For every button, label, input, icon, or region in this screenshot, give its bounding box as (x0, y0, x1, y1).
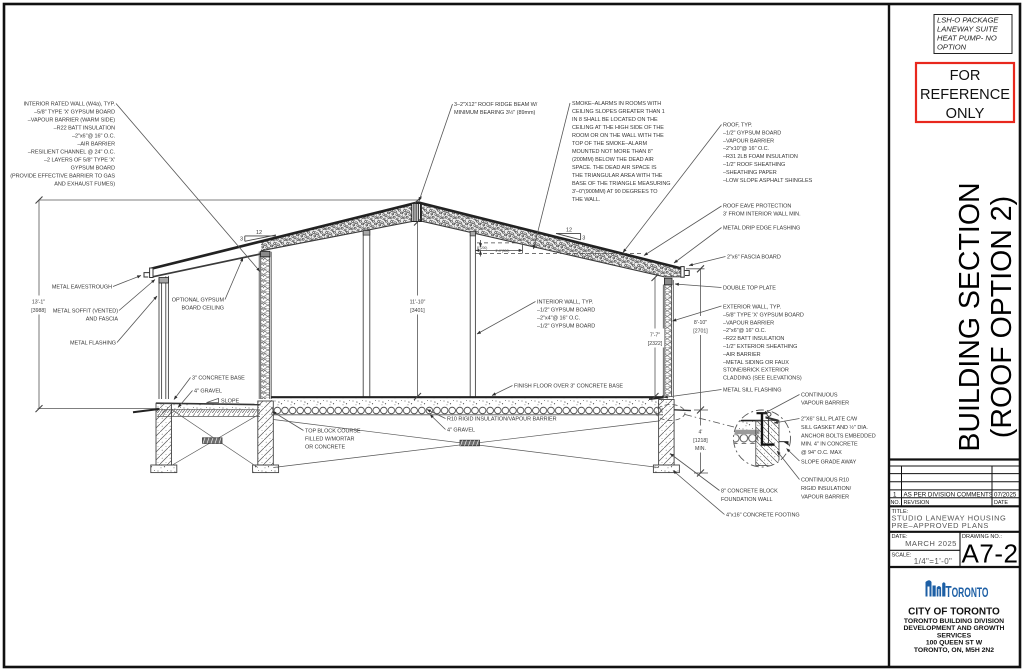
svg-text:[3988]: [3988] (31, 308, 46, 314)
svg-text:METAL SILL FLASHING: METAL SILL FLASHING (723, 388, 781, 394)
svg-text:3: 3 (582, 236, 585, 242)
svg-text:3: 3 (240, 237, 243, 243)
svg-text:METAL DRIP EDGE FLASHING: METAL DRIP EDGE FLASHING (723, 226, 800, 232)
svg-text:–1/2" GYPSUM BOARD: –1/2" GYPSUM BOARD (537, 324, 595, 330)
svg-text:–R22 BATT INSULATION: –R22 BATT INSULATION (54, 126, 115, 132)
svg-text:SLOPE GRADE AWAY: SLOPE GRADE AWAY (801, 460, 857, 466)
svg-text:METAL FLASHING: METAL FLASHING (70, 341, 116, 347)
svg-text:–AIR BARRIER: –AIR BARRIER (77, 142, 115, 148)
svg-text:LSH-O PACKAGE: LSH-O PACKAGE (937, 16, 999, 25)
svg-text:ROOM OR ON THE WALL WITH THE: ROOM OR ON THE WALL WITH THE (572, 133, 664, 139)
svg-text:[2701]: [2701] (693, 328, 708, 334)
svg-text:TORONTO, ON, M5H 2N2: TORONTO, ON, M5H 2N2 (914, 647, 994, 654)
svg-text:SMOKE–ALARMS IN ROOMS WITH: SMOKE–ALARMS IN ROOMS WITH (572, 101, 661, 107)
svg-text:SILL GASKET AND ½" DIA.: SILL GASKET AND ½" DIA. (801, 424, 868, 431)
svg-text:11'-10": 11'-10" (410, 300, 426, 306)
svg-text:SPACE. THE DEAD AIR SPACE IS: SPACE. THE DEAD AIR SPACE IS (572, 165, 657, 171)
svg-text:–1/2" ROOF SHEATHING: –1/2" ROOF SHEATHING (723, 162, 785, 168)
svg-text:FOR: FOR (950, 68, 981, 84)
svg-text:REFERENCE: REFERENCE (920, 87, 1010, 103)
svg-text:@ 94" O.C. MAX: @ 94" O.C. MAX (801, 450, 842, 456)
svg-text:12: 12 (256, 230, 262, 236)
svg-text:AND EXHAUST FUMES): AND EXHAUST FUMES) (54, 182, 115, 188)
svg-text:–5/8" TYPE 'X' GYPSUM BOARD: –5/8" TYPE 'X' GYPSUM BOARD (723, 312, 804, 318)
svg-text:100 QUEEN ST W: 100 QUEEN ST W (926, 640, 983, 647)
svg-text:METAL SOFFIT (VENTED): METAL SOFFIT (VENTED) (53, 309, 118, 315)
svg-text:DEVELOPMENT AND GROWTH: DEVELOPMENT AND GROWTH (904, 625, 1005, 632)
svg-text:(PROVIDE EFFECTIVE BARRIER TO: (PROVIDE EFFECTIVE BARRIER TO GAS (10, 174, 115, 180)
svg-text:PRE–APPROVED PLANS: PRE–APPROVED PLANS (892, 521, 989, 530)
svg-text:(200MM) BELOW THE DEAD AIR: (200MM) BELOW THE DEAD AIR (572, 157, 654, 163)
svg-text:TORONTO BUILDING DIVISION: TORONTO BUILDING DIVISION (904, 618, 1004, 625)
svg-text:3–2"X12" ROOF RIDGE BEAM W/: 3–2"X12" ROOF RIDGE BEAM W/ (454, 102, 538, 108)
svg-text:3'-0"(900): 3'-0"(900) (496, 249, 510, 253)
svg-text:CLADDING (SEE ELEVATIONS): CLADDING (SEE ELEVATIONS) (723, 376, 802, 382)
svg-text:–R31 2LB FOAM INSULATION: –R31 2LB FOAM INSULATION (723, 154, 798, 160)
svg-text:OPTION: OPTION (937, 43, 967, 52)
svg-text:–METAL SIDING OR FAUX: –METAL SIDING OR FAUX (723, 360, 789, 366)
svg-text:BUILDING SECTION: BUILDING SECTION (954, 182, 986, 451)
svg-text:INTERIOR WALL, TYP.: INTERIOR WALL, TYP. (537, 300, 594, 306)
svg-text:GYPSUM BOARD: GYPSUM BOARD (71, 166, 115, 172)
svg-text:–2"x10"@ 16" O.C.: –2"x10"@ 16" O.C. (723, 146, 770, 152)
svg-text:BOARD CEILING: BOARD CEILING (182, 306, 224, 312)
svg-text:CEILING SLOPES GREATER THAN 1: CEILING SLOPES GREATER THAN 1 (572, 109, 665, 115)
svg-text:–2"x6"@ 16" O.C.: –2"x6"@ 16" O.C. (72, 134, 116, 140)
svg-text:FINISH FLOOR OVER 3" CONCRETE: FINISH FLOOR OVER 3" CONCRETE BASE (514, 384, 623, 390)
svg-text:REVISION: REVISION (904, 500, 930, 506)
svg-text:THE WALL.: THE WALL. (572, 197, 601, 203)
svg-text:ROOF, TYP.: ROOF, TYP. (723, 123, 753, 129)
svg-text:TOP BLOCK COURSE: TOP BLOCK COURSE (305, 429, 361, 435)
svg-text:–2"x6"@ 16" O.C.: –2"x6"@ 16" O.C. (723, 328, 767, 334)
svg-text:(ROOF OPTION 2): (ROOF OPTION 2) (986, 196, 1018, 438)
svg-text:[3401]: [3401] (410, 308, 425, 314)
svg-text:VAPOUR BARRIER: VAPOUR BARRIER (801, 494, 849, 500)
svg-text:STONE/BRICK EXTERIOR: STONE/BRICK EXTERIOR (723, 368, 789, 374)
svg-text:SCALE:: SCALE: (892, 553, 912, 559)
svg-text:VAPOUR BARRIER: VAPOUR BARRIER (801, 401, 849, 407)
svg-text:NO.: NO. (891, 500, 901, 506)
svg-text:–1/2" GYPSUM BOARD: –1/2" GYPSUM BOARD (723, 130, 781, 136)
svg-text:ROOF EAVE PROTECTION: ROOF EAVE PROTECTION (723, 204, 791, 210)
svg-text:CEILING AT THE HIGH SIDE OF TH: CEILING AT THE HIGH SIDE OF THE (572, 125, 664, 131)
svg-text:MOUNTED NOT MORE THAN 8": MOUNTED NOT MORE THAN 8" (572, 149, 653, 155)
svg-text:–VAPOUR BARRIER: –VAPOUR BARRIER (723, 320, 774, 326)
svg-text:13'-1": 13'-1" (32, 300, 45, 306)
svg-text:FILLED W/MORTAR: FILLED W/MORTAR (305, 437, 355, 443)
svg-text:CITY OF TORONTO: CITY OF TORONTO (908, 607, 1000, 618)
svg-text:A7-2: A7-2 (962, 539, 1019, 569)
svg-text:8"(200): 8"(200) (477, 246, 487, 250)
svg-text:8'-10": 8'-10" (694, 320, 707, 326)
svg-text:–1/2" GYPSUM BOARD: –1/2" GYPSUM BOARD (537, 308, 595, 314)
svg-text:AS PER DIVISION COMMENTS: AS PER DIVISION COMMENTS (904, 491, 993, 498)
svg-text:MINIMUM BEARING 3½" (89mm): MINIMUM BEARING 3½" (89mm) (454, 109, 536, 116)
svg-text:2"x6" FASCIA BOARD: 2"x6" FASCIA BOARD (727, 255, 781, 261)
svg-text:[2322]: [2322] (648, 341, 663, 347)
svg-text:–2 LAYERS OF 5/8" TYPE 'X': –2 LAYERS OF 5/8" TYPE 'X' (44, 158, 115, 164)
svg-text:8" CONCRETE BLOCK: 8" CONCRETE BLOCK (721, 489, 778, 495)
svg-text:3' FROM INTERIOR WALL MIN.: 3' FROM INTERIOR WALL MIN. (723, 212, 801, 218)
svg-text:AND FASCIA: AND FASCIA (86, 317, 119, 323)
svg-text:–RESILIENT CHANNEL @ 24" O.C.: –RESILIENT CHANNEL @ 24" O.C. (28, 150, 116, 156)
svg-text:TORONTO: TORONTO (946, 584, 989, 601)
svg-text:THE TRIANGULAR AREA WITH THE: THE TRIANGULAR AREA WITH THE (572, 173, 663, 179)
svg-text:METAL EAVESTROUGH: METAL EAVESTROUGH (52, 285, 112, 291)
svg-text:3'–0"(900MM) AT 90 DEGREES TO: 3'–0"(900MM) AT 90 DEGREES TO (572, 189, 658, 195)
svg-text:HEAT PUMP- NO: HEAT PUMP- NO (937, 34, 997, 43)
svg-text:ANCHOR BOLTS EMBEDDED: ANCHOR BOLTS EMBEDDED (801, 433, 876, 439)
svg-text:–AIR BARRIER: –AIR BARRIER (723, 352, 761, 358)
svg-text:EXTERIOR WALL, TYP.: EXTERIOR WALL, TYP. (723, 305, 781, 311)
svg-text:CONTINUOUS: CONTINUOUS (801, 393, 838, 399)
svg-text:4"x16" CONCRETE FOOTING: 4"x16" CONCRETE FOOTING (726, 513, 800, 519)
svg-text:SERVICES: SERVICES (937, 632, 972, 639)
svg-text:4" GRAVEL: 4" GRAVEL (447, 428, 475, 434)
svg-text:–2"x4"@ 16" O.C.: –2"x4"@ 16" O.C. (537, 316, 581, 322)
svg-text:OR CONCRETE: OR CONCRETE (305, 445, 345, 451)
svg-text:MIN. 4" IN CONCRETE: MIN. 4" IN CONCRETE (801, 442, 858, 448)
svg-text:4': 4' (699, 430, 703, 436)
svg-text:–5/8" TYPE 'X' GYPSUM BOARD: –5/8" TYPE 'X' GYPSUM BOARD (34, 110, 115, 116)
svg-text:TOP OF THE SMOKE–ALARM: TOP OF THE SMOKE–ALARM (572, 141, 647, 147)
svg-text:–SHEATHING PAPER: –SHEATHING PAPER (723, 170, 777, 176)
svg-text:ONLY: ONLY (946, 106, 985, 122)
svg-text:–R22 BATT INSULATION: –R22 BATT INSULATION (723, 336, 784, 342)
svg-text:FOUNDATION WALL: FOUNDATION WALL (721, 497, 773, 503)
svg-text:CONTINUOUS R10: CONTINUOUS R10 (801, 478, 849, 484)
svg-text:3" CONCRETE BASE: 3" CONCRETE BASE (192, 376, 245, 382)
svg-text:–LOW SLOPE ASPHALT SHINGLES: –LOW SLOPE ASPHALT SHINGLES (723, 178, 813, 184)
svg-text:07/2025: 07/2025 (994, 491, 1017, 498)
svg-text:IN 8 SHALL BE LOCATED ON THE: IN 8 SHALL BE LOCATED ON THE (572, 117, 658, 123)
svg-text:RIGID INSULATION/: RIGID INSULATION/ (801, 486, 852, 492)
svg-text:R10 RIGID INSULATION/VAPOUR BA: R10 RIGID INSULATION/VAPOUR BARRIER (447, 417, 557, 423)
svg-text:2"X6" SILL PLATE C/W: 2"X6" SILL PLATE C/W (801, 417, 858, 423)
svg-text:MIN.: MIN. (695, 446, 706, 452)
svg-text:–VAPOUR BARRIER (WARM SIDE): –VAPOUR BARRIER (WARM SIDE) (28, 118, 115, 124)
svg-text:BASE OF THE TRIANGLE MEASURING: BASE OF THE TRIANGLE MEASURING (572, 181, 671, 187)
svg-text:DATE: DATE (994, 500, 1008, 506)
svg-text:–1/2" EXTERIOR SHEATHING: –1/2" EXTERIOR SHEATHING (723, 344, 797, 350)
svg-text:DOUBLE TOP PLATE: DOUBLE TOP PLATE (723, 286, 776, 292)
svg-text:1: 1 (893, 491, 897, 498)
svg-text:MARCH 2025: MARCH 2025 (905, 539, 957, 548)
svg-text:4" GRAVEL: 4" GRAVEL (194, 389, 222, 395)
svg-text:INTERIOR RATED WALL (W4a), TYP: INTERIOR RATED WALL (W4a), TYP. (23, 102, 115, 108)
svg-text:LANEWAY SUITE: LANEWAY SUITE (937, 25, 999, 34)
svg-text:1/4"=1'-0": 1/4"=1'-0" (914, 557, 953, 566)
svg-text:7'-7": 7'-7" (650, 333, 660, 339)
svg-text:12: 12 (566, 227, 572, 233)
svg-text:[1218]: [1218] (693, 438, 708, 444)
svg-text:–VAPOUR BARRIER: –VAPOUR BARRIER (723, 138, 774, 144)
svg-text:OPTIONAL GYPSUM: OPTIONAL GYPSUM (172, 298, 225, 304)
